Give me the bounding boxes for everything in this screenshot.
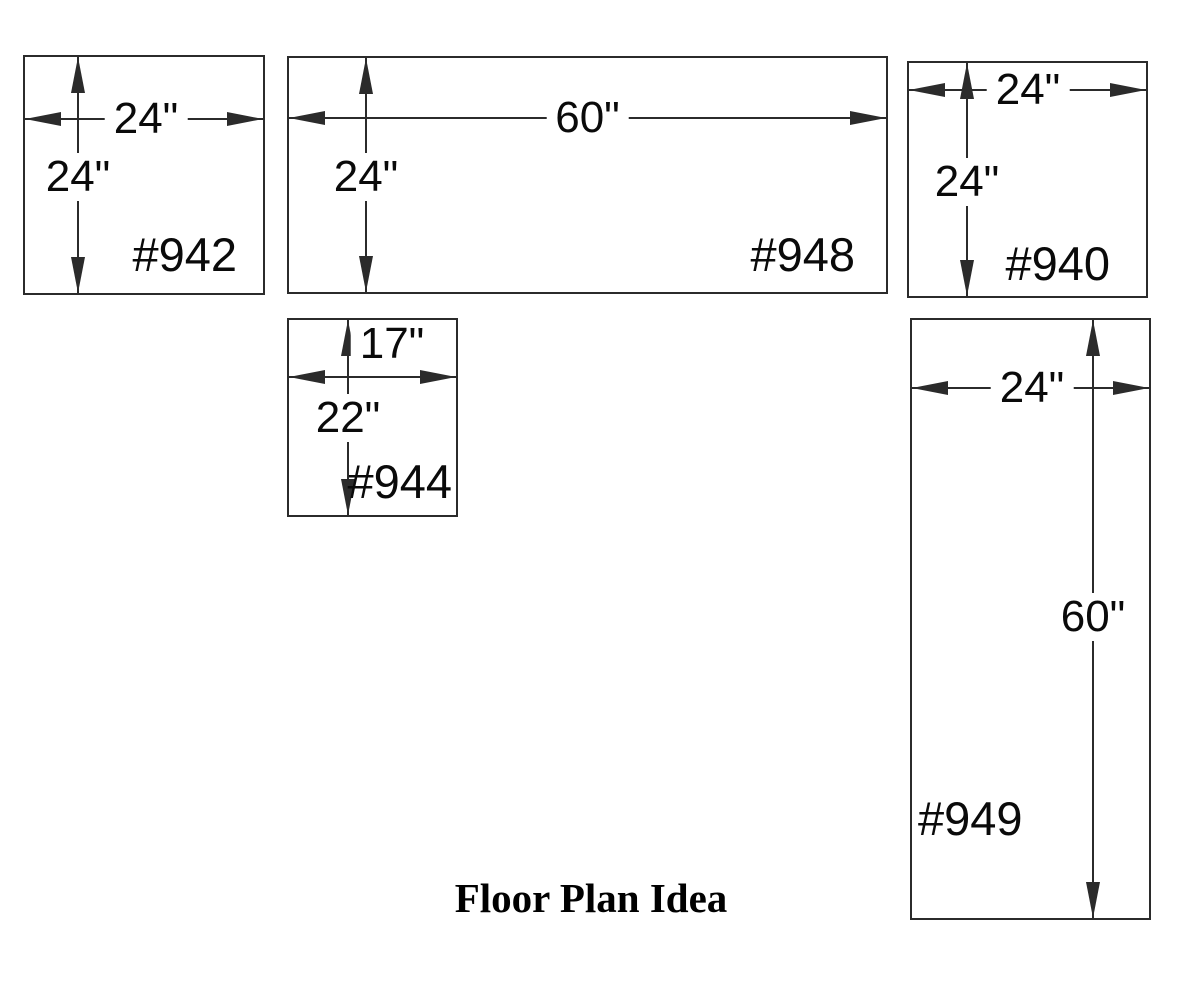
unit-940-box: 24" 24" #940 (907, 61, 1148, 298)
unit-942-height-arrowhead-up (71, 57, 85, 93)
unit-942-label: #942 (132, 231, 237, 278)
unit-940-height-arrowhead-up (960, 63, 974, 99)
unit-949-width-arrowhead-right (1113, 381, 1149, 395)
unit-949-label: #949 (918, 795, 1023, 842)
unit-942-width-arrowhead-right (227, 112, 263, 126)
unit-942-height-dimension: 24" (37, 153, 120, 201)
unit-948-height-arrowhead-down (359, 256, 373, 292)
unit-944-box: 17" 22" #944 (287, 318, 458, 517)
unit-940-width-dimension: 24" (987, 66, 1070, 114)
unit-949-box: 24" 60" #949 (910, 318, 1151, 920)
unit-949-height-arrowhead-down (1086, 882, 1100, 918)
unit-942-width-dimension: 24" (105, 95, 188, 143)
unit-944-width-dimension: 17" (351, 320, 434, 368)
unit-948-label: #948 (750, 231, 855, 278)
unit-944-label: #944 (347, 458, 452, 505)
unit-948-width-arrowhead-right (850, 111, 886, 125)
unit-942-width-arrowhead-left (25, 112, 61, 126)
unit-948-height-dimension: 24" (325, 153, 408, 201)
unit-948-width-arrowhead-left (289, 111, 325, 125)
unit-940-width-arrowhead-left (909, 83, 945, 97)
unit-940-height-arrowhead-down (960, 260, 974, 296)
floor-plan-canvas: 24" 24" #942 60" 24" #948 24" 24" #940 1… (0, 0, 1200, 1000)
unit-942-height-arrowhead-down (71, 257, 85, 293)
unit-949-height-dimension: 60" (1052, 593, 1135, 641)
unit-948-width-dimension: 60" (546, 94, 629, 142)
unit-949-width-dimension: 24" (991, 364, 1074, 412)
unit-940-width-arrowhead-right (1110, 83, 1146, 97)
unit-949-height-arrowhead-up (1086, 320, 1100, 356)
unit-944-width-arrowhead-right (420, 370, 456, 384)
unit-944-height-dimension: 22" (307, 394, 390, 442)
page-title: Floor Plan Idea (455, 878, 728, 919)
unit-948-height-arrowhead-up (359, 58, 373, 94)
unit-948-box: 60" 24" #948 (287, 56, 888, 294)
unit-949-width-arrowhead-left (912, 381, 948, 395)
unit-944-width-arrowhead-left (289, 370, 325, 384)
unit-942-box: 24" 24" #942 (23, 55, 265, 295)
unit-940-label: #940 (1005, 240, 1110, 287)
unit-940-height-dimension: 24" (926, 158, 1009, 206)
